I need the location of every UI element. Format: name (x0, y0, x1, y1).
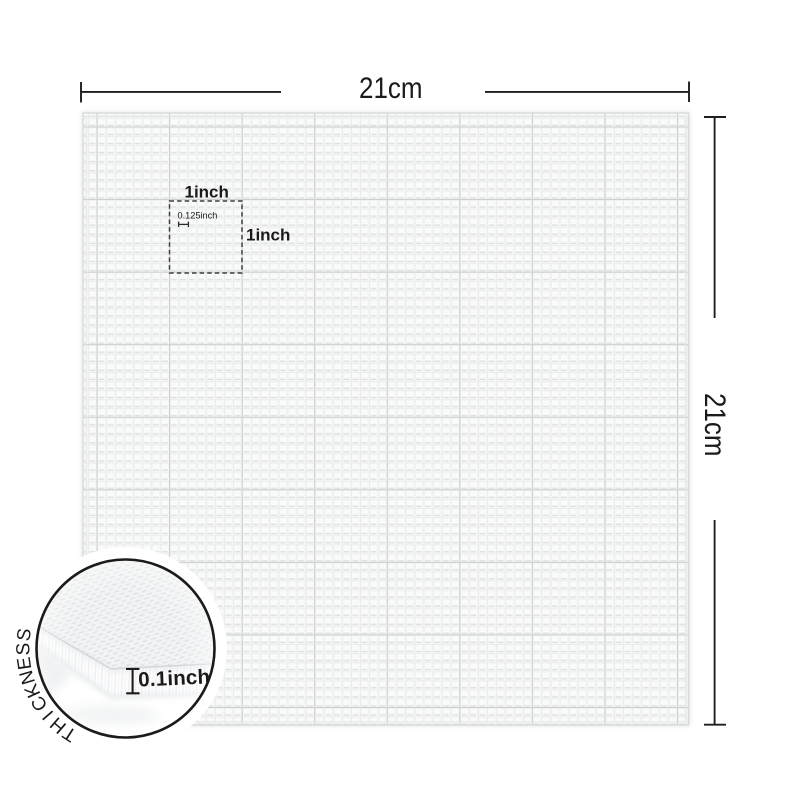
svg-text:1inch: 1inch (246, 226, 290, 245)
svg-text:S: S (13, 643, 34, 656)
svg-text:21cm: 21cm (359, 72, 423, 105)
svg-text:21cm: 21cm (698, 393, 731, 457)
svg-text:0.1inch: 0.1inch (138, 665, 211, 691)
svg-text:0.125inch: 0.125inch (178, 211, 218, 221)
svg-text:1inch: 1inch (185, 183, 229, 202)
svg-text:E: E (14, 655, 37, 671)
